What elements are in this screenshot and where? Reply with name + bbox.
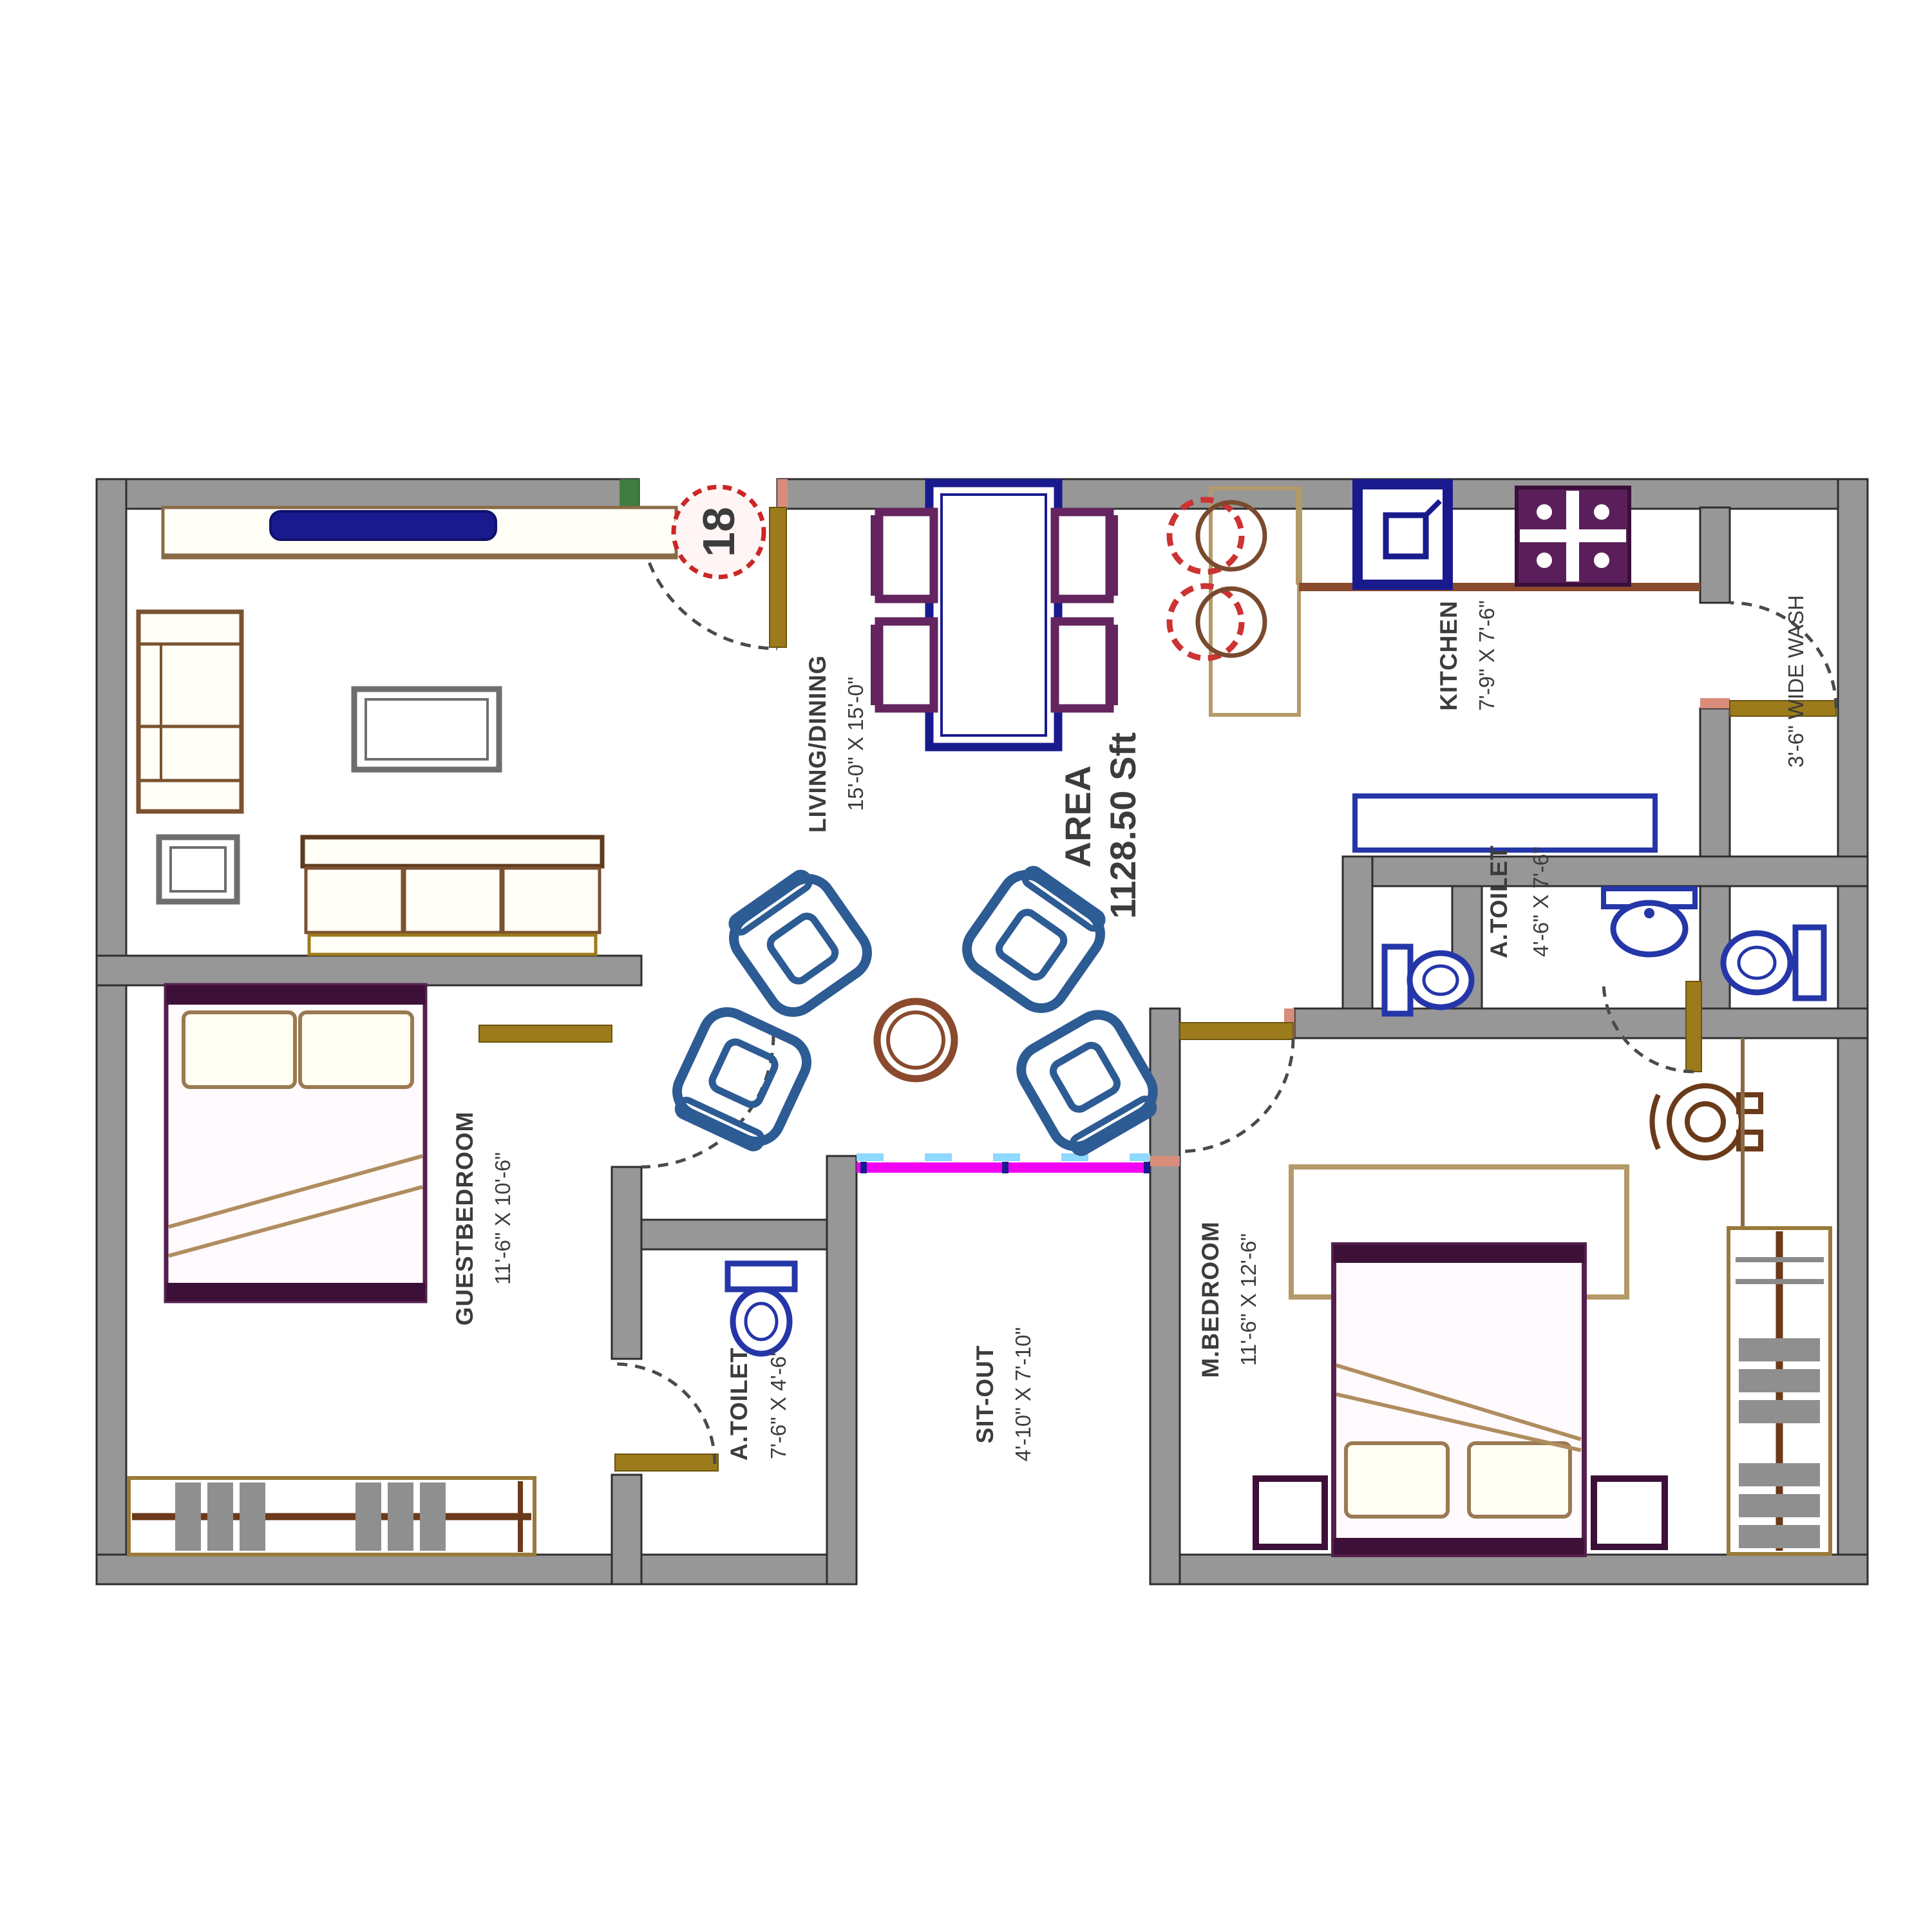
wall-left (97, 479, 126, 1584)
dining-chair-right-1 (1055, 512, 1110, 599)
wall-bottom-left-block (97, 1555, 857, 1584)
dining-table (929, 483, 1058, 747)
toilet1-wc-tank (1385, 947, 1410, 1014)
master-bed (1334, 1245, 1584, 1555)
cluster-chair-lower-left (667, 1004, 815, 1155)
master-bedroom-door-leaf (1180, 1023, 1293, 1039)
sitout-dims: 4'-10" X 7'-10" (1011, 1327, 1035, 1461)
master-bed-pillow-1 (1346, 1443, 1448, 1517)
jamb-mark-salmon-washdoor (1700, 698, 1730, 708)
stamp-number: 18 (694, 507, 744, 557)
dining-chair-right-2 (1055, 621, 1110, 708)
entrance-door-leaf (770, 507, 786, 647)
wash-door-leaf (1730, 701, 1836, 716)
jamb-mark-salmon-sitout (1150, 1156, 1180, 1166)
wall-toiletband-left (1343, 857, 1372, 1009)
guest-toilet-door-leaf (615, 1454, 718, 1471)
master-bedroom-door-arc (1180, 1038, 1293, 1151)
jamb-mark-green (620, 479, 639, 509)
master-bedroom-label: M.BEDROOM (1197, 1221, 1224, 1378)
bar-stool-1-red (1170, 500, 1242, 572)
master-bed-headband (1334, 1245, 1584, 1263)
wall-bottom-right-block (1150, 1555, 1868, 1584)
wall-living-guest-divider (97, 956, 641, 985)
master-wardrobe (1728, 1228, 1830, 1554)
wall-kitchen-wash-lower (1700, 708, 1730, 857)
toilet-fixtures (728, 889, 1824, 1354)
wall-sitout-left (827, 1156, 857, 1584)
cluster-chair-upper-left (721, 864, 876, 1021)
kitchen-dims: 7'-9" X 7'-6" (1475, 600, 1499, 711)
area-label-line1: AREA (1057, 766, 1098, 868)
toilet1-wc (1385, 947, 1472, 1014)
sink-basin (1386, 515, 1426, 556)
sitout-label: SIT-OUT (972, 1345, 998, 1444)
living-room-dims: 15'-0" X 15'-0" (844, 677, 867, 811)
floor-plan-page: 18 (0, 0, 1932, 1932)
three-seater-base (309, 935, 596, 954)
guest-bedroom-dims: 11'-6" X 10'-6" (491, 1152, 515, 1285)
guest-bed-headboard (166, 985, 425, 1005)
attached-toilet-door-leaf (1686, 981, 1701, 1072)
guest-toilet-wc (728, 1264, 795, 1354)
dining-chair-right-1-back (1106, 515, 1118, 596)
three-seater-cushion-2 (404, 868, 501, 933)
wall-toiletband-top (1343, 857, 1868, 886)
area-label-line2: 1128.50 Sft (1103, 732, 1143, 919)
wall-guest-right-low (612, 1475, 641, 1584)
guest-bed-pillow-2 (300, 1012, 412, 1087)
toilet3-wc (1723, 927, 1824, 998)
dining-set (871, 483, 1118, 747)
wash-door-arc (1730, 603, 1836, 708)
wall-top-left (97, 479, 639, 509)
dining-chair-left-2-back (871, 625, 882, 705)
three-seater-cushion-3 (503, 868, 600, 933)
guest-bed-footband (166, 1283, 425, 1301)
guest-bed (166, 985, 425, 1301)
kitchen-stove (1517, 488, 1629, 585)
toilet1-wc-bowl (1410, 953, 1472, 1007)
kitchen-platform (1355, 796, 1655, 850)
master-bed-footband (1334, 1538, 1584, 1555)
jamb-mark-salmon-entrance (777, 479, 788, 509)
master-nightstand-left (1256, 1479, 1325, 1547)
wash-label: 3'-6" WIDE WASH (1784, 595, 1808, 768)
kitchen-sink (1358, 484, 1448, 585)
breakfast-bar (1170, 488, 1299, 715)
wall-kitchen-wash-upper (1700, 507, 1730, 603)
stove-burner-3 (1537, 553, 1552, 568)
three-seater-cushion-1 (306, 868, 402, 933)
living-room-label: LIVING/DINING (804, 655, 831, 833)
guest-toilet-door-arc (615, 1364, 715, 1464)
wall-guest-toilet-top (641, 1220, 857, 1249)
left-sofa (138, 612, 241, 811)
toilet3-wc-bowl (1723, 933, 1790, 992)
wall-guest-right-mid (612, 1167, 641, 1359)
wall-master-top (1294, 1009, 1868, 1038)
sitout-sliding-door (857, 1157, 1150, 1168)
dining-chair-left-1-back (871, 515, 882, 596)
wash-door (1730, 603, 1836, 716)
door-number-stamp: 18 (674, 487, 764, 577)
stove-burner-2 (1594, 504, 1609, 520)
three-seater-back (303, 837, 602, 866)
kitchen-label: KITCHEN (1435, 600, 1462, 710)
cluster-chair-lower-right (1012, 1006, 1165, 1160)
stove-burner-1 (1537, 504, 1552, 520)
master-nightstand-right (1594, 1479, 1665, 1547)
guest-bed-pillow-1 (184, 1012, 295, 1087)
dining-chair-right-2-back (1106, 625, 1118, 705)
dining-chair-left-2 (879, 621, 934, 708)
master-bed-pillow-2 (1469, 1443, 1570, 1517)
sofa-cluster (667, 860, 1164, 1160)
toilet-left-dims: 7'-6" X 4'-6" (766, 1349, 790, 1459)
guest-wc-bowl (733, 1289, 790, 1354)
guest-bedroom-door-leaf (479, 1025, 612, 1042)
coffee-table (354, 689, 499, 770)
toilet-right-label: A.TOILET (1486, 845, 1512, 958)
stove-burner-4 (1594, 553, 1609, 568)
toilet2-basin (1604, 889, 1695, 954)
cluster-chair-upper-right (958, 860, 1113, 1018)
bar-stool-2-red (1170, 586, 1242, 658)
tv-icon (270, 511, 496, 540)
dining-chair-left-1 (879, 512, 934, 599)
basin-tap (1644, 908, 1654, 918)
floor-plan-drawing: 18 (0, 0, 1932, 1932)
master-bedroom-door (1180, 1023, 1293, 1151)
guest-wc-tank (728, 1264, 795, 1289)
guest-wardrobe (129, 1478, 535, 1555)
kitchen-counter-left-edge (1296, 488, 1302, 585)
toilet-left-label: A.TOILET (726, 1347, 752, 1461)
toilet-right-dims: 4'-6" X 7'-6" (1529, 846, 1553, 957)
toilet3-wc-tank (1795, 927, 1824, 998)
master-bedroom-furniture (1256, 1038, 1830, 1555)
three-seater-sofa (303, 837, 602, 954)
guest-toilet-door (615, 1364, 718, 1471)
master-bedroom-dims: 11'-6" X 12'-6" (1236, 1233, 1260, 1366)
cluster-round-table-inner (888, 1012, 943, 1068)
guest-bedroom-label: GUESTBEDROOM (451, 1112, 478, 1326)
